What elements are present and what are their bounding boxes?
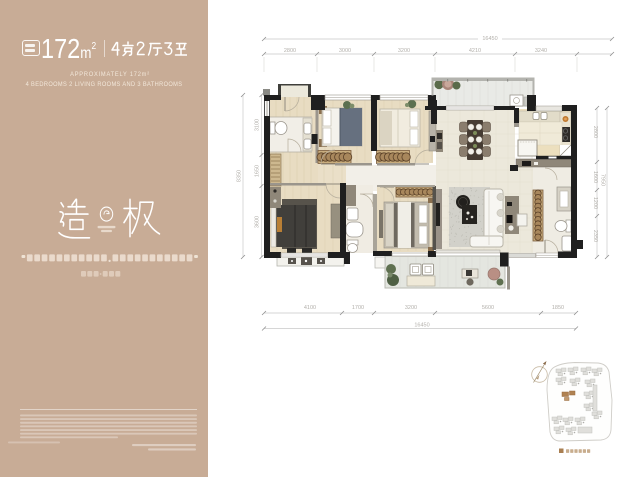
svg-text:5600: 5600	[482, 305, 494, 311]
svg-text:2800: 2800	[592, 126, 598, 138]
svg-text:4210: 4210	[469, 48, 481, 54]
svg-text:3200: 3200	[398, 48, 410, 54]
svg-text:8350: 8350	[237, 170, 243, 182]
svg-text:7950: 7950	[600, 174, 606, 186]
svg-text:16450: 16450	[414, 323, 429, 329]
svg-text:2350: 2350	[592, 230, 598, 242]
svg-text:16450: 16450	[482, 36, 497, 42]
svg-text:2800: 2800	[284, 48, 296, 54]
svg-text:3240: 3240	[535, 48, 547, 54]
svg-text:1200: 1200	[592, 197, 598, 209]
svg-text:1850: 1850	[552, 305, 564, 311]
svg-text:3000: 3000	[339, 48, 351, 54]
svg-text:1650: 1650	[255, 165, 261, 177]
svg-text:3600: 3600	[255, 216, 261, 228]
svg-text:3100: 3100	[255, 119, 261, 131]
svg-text:1700: 1700	[352, 305, 364, 311]
svg-text:3200: 3200	[405, 305, 417, 311]
svg-text:1600: 1600	[592, 171, 598, 183]
svg-text:4100: 4100	[304, 305, 316, 311]
